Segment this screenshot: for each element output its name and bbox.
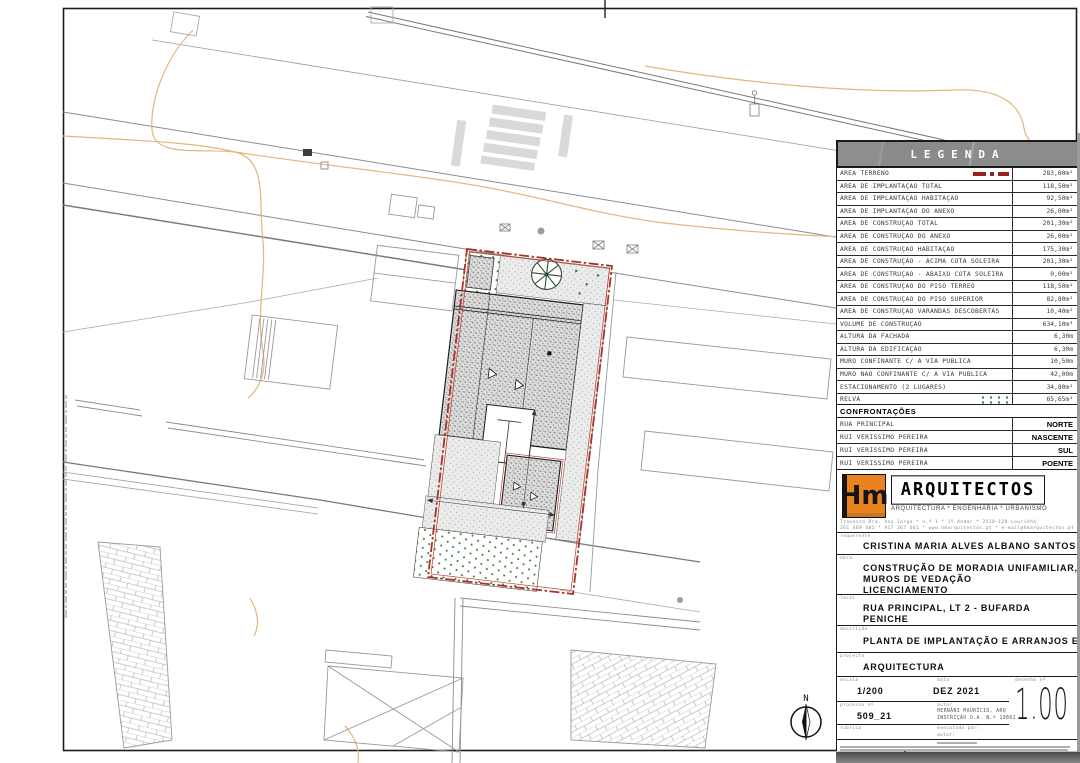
legend-row-value: 201,30m²: [1012, 256, 1077, 268]
field-label-autor2: autor:: [937, 733, 955, 738]
legend-row-value: 634,10m³: [1012, 319, 1077, 331]
legend-row-value: 175,30m²: [1012, 243, 1077, 255]
legend-row: ALTURA DA FACHADA6,30m: [837, 331, 1077, 344]
field-label-data: data: [937, 678, 949, 683]
legend-row: ÁREA DE CONSTRUÇÃO - ACIMA COTA SOLEIRA2…: [837, 256, 1077, 269]
legend-row: ÁREA DE CONSTRUÇÃO - ABAIXO COTA SOLEIRA…: [837, 268, 1077, 281]
legend-row: MURO NÃO CONFINANTE C/ A VIA PÚBLICA42,0…: [837, 369, 1077, 382]
title-block: Hm ARQUITECTOS ARQUITECTURA * ENGENHARIA…: [836, 469, 1078, 751]
confrontacao-row: RUI VERISSIMO PEREIRAPOENTE: [837, 457, 1077, 469]
field-label-descricao: descrição: [840, 627, 868, 632]
autor-line1: HERNÂNI MAURÍCIO, ARQ: [937, 709, 1006, 714]
legend-row-label: ÁREA TERRENO: [840, 170, 889, 177]
field-label-processo: processo nº: [840, 703, 874, 708]
legend-row: ÁREA TERRENO283,00m²: [837, 168, 1077, 181]
confrontacao-direction: NORTE: [1012, 418, 1077, 430]
escala-value: 1/200: [857, 686, 884, 696]
field-line: CONSTRUÇÃO DE MORADIA UNIFAMILIAR, ANEXO…: [863, 563, 1080, 573]
field-line: RUA PRINCIPAL, LT 2 - BUFARDA: [863, 603, 1031, 613]
legend-row-label: VOLUME DE CONSTRUÇÃO: [840, 321, 922, 328]
legend-row-label: ALTURA DA EDIFICAÇÃO: [840, 346, 922, 353]
legend-row-label: MURO CONFINANTE C/ A VIA PÚBLICA: [840, 358, 971, 365]
field-label-rubrica: rubrica: [840, 726, 861, 731]
requerente-value: CRISTINA MARIA ALVES ALBANO SANTOS: [863, 541, 1076, 551]
legend-row: ALTURA DA EDIFICAÇÃO6,30m: [837, 344, 1077, 357]
legend-row: ÁREA DE CONSTRUÇÃO VARANDAS DESCOBERTAS1…: [837, 306, 1077, 319]
legend-row-value: 6,30m: [1012, 344, 1077, 356]
autor-line2: INSCRIÇÃO O.A. N.º 19862: [937, 716, 1016, 721]
north-label: N: [803, 694, 808, 704]
company-address-line1: Travessa Dra. Ana Jorge * n.º 1 * 1º And…: [840, 520, 1072, 525]
legend-row: ÁREA DE CONSTRUÇÃO DO PISO SUPERIOR82,80…: [837, 293, 1077, 306]
legend-row-value: 42,00m: [1012, 369, 1077, 381]
boundary-symbol-icon: [973, 172, 1009, 176]
company-tagline: ARQUITECTURA * ENGENHARIA * URBANISMO: [891, 506, 1047, 512]
company-address-line2: 261 469 481 * 917 367 661 * www.hmarquit…: [840, 526, 1072, 531]
legend-title: LEGENDA: [910, 148, 1005, 161]
legend-row-value: 82,80m²: [1012, 293, 1077, 305]
confrontacao-direction: SUL: [1012, 444, 1077, 456]
legend-row-label: ESTACIONAMENTO (2 LUGARES): [840, 384, 946, 391]
legend-row-value: 6,30m: [1012, 331, 1077, 343]
legend-row-label: ÁREA DE IMPLANTAÇÃO TOTAL: [840, 183, 942, 190]
field-label-obra: obra: [840, 556, 852, 561]
legend-row: MURO CONFINANTE C/ A VIA PÚBLICA10,50m: [837, 356, 1077, 369]
drawing-sheet: N LEGENDA ÁREA TERRENO283,00m²ÁREA DE IM…: [0, 0, 1080, 763]
legend-row-label: ÁREA DE CONSTRUÇÃO HABITAÇÃO: [840, 246, 955, 253]
legend-row-label: ÁREA DE CONSTRUÇÃO DO ANEXO: [840, 233, 950, 240]
legend-row-value: 201,30m²: [1012, 218, 1077, 230]
field-label-local: local: [840, 596, 855, 601]
legend-row-label: MURO NÃO CONFINANTE C/ A VIA PÚBLICA: [840, 371, 987, 378]
field-label-autor: autor: [937, 703, 952, 708]
legend-header: LEGENDA: [836, 140, 1080, 168]
legend-row-label: ÁREA DE CONSTRUÇÃO TOTAL: [840, 220, 938, 227]
confrontacao-row: RUI VERISSIMO PEREIRASUL: [837, 444, 1077, 457]
legend-row-value: 10,40m²: [1012, 306, 1077, 318]
grass-symbol-icon: [979, 395, 1009, 404]
confrontacao-label: RUI VERISSIMO PEREIRA: [837, 434, 1012, 441]
field-label-executado: executado por:: [937, 726, 980, 731]
legend-row-value: 118,50m²: [1012, 281, 1077, 293]
legend-row: VOLUME DE CONSTRUÇÃO634,10m³: [837, 319, 1077, 332]
legend-row: ÁREA DE CONSTRUÇÃO TOTAL201,30m²: [837, 218, 1077, 231]
legend-row-label: RELVA: [840, 396, 860, 403]
legend-row: ÁREA DE IMPLANTAÇÃO DO ANEXO26,00m²: [837, 206, 1077, 219]
legend-row-label: ÁREA DE IMPLANTAÇÃO DO ANEXO: [840, 208, 955, 215]
confrontacoes-header: CONFRONTAÇÕES: [837, 405, 1077, 418]
legend-row-label: ALTURA DA FACHADA: [840, 333, 910, 340]
confrontacao-direction: NASCENTE: [1012, 431, 1077, 443]
legend-row-label: ÁREA DE CONSTRUÇÃO - ACIMA COTA SOLEIRA: [840, 258, 1000, 265]
confrontacao-direction: POENTE: [1012, 457, 1077, 469]
legend-row: ÁREA DE IMPLANTAÇÃO TOTAL118,50m²: [837, 181, 1077, 194]
legend-row: ÁREA DE CONSTRUÇÃO DO PISO TÉRREO118,50m…: [837, 281, 1077, 294]
desenho-number: 1.00: [1015, 680, 1069, 729]
data-value: DEZ 2021: [933, 686, 980, 696]
legend-row-value: 26,00m²: [1012, 231, 1077, 243]
hm-logo: Hm: [842, 474, 886, 518]
page-edge-shadow-bottom: [836, 752, 1080, 763]
legend-row: ESTACIONAMENTO (2 LUGARES)34,80m²: [837, 381, 1077, 394]
processo-value: 509_21: [857, 711, 892, 721]
projecto-value: ARQUITECTURA: [863, 662, 945, 672]
field-label-projecto: projecto: [840, 654, 865, 659]
confrontacao-row: RUI VERISSIMO PEREIRANASCENTE: [837, 431, 1077, 444]
legend-row-value: 92,50m²: [1012, 193, 1077, 205]
legend-row-value: 10,50m: [1012, 356, 1077, 368]
legend-row-value: 283,00m²: [1012, 168, 1077, 180]
descricao-value: PLANTA DE IMPLANTAÇÃO E ARRANJOS EXTERIO…: [863, 636, 1080, 646]
legend-row-label: ÁREA DE CONSTRUÇÃO VARANDAS DESCOBERTAS: [840, 308, 1000, 315]
legend-table: ÁREA TERRENO283,00m²ÁREA DE IMPLANTAÇÃO …: [836, 167, 1078, 419]
legend-row: ÁREA DE CONSTRUÇÃO DO ANEXO26,00m²: [837, 231, 1077, 244]
legend-row: ÁREA DE IMPLANTAÇÃO HABITAÇÃO92,50m²: [837, 193, 1077, 206]
field-label-requerente: requerente: [840, 534, 871, 539]
legend-row-label: ÁREA DE CONSTRUÇÃO DO PISO TÉRREO: [840, 283, 975, 290]
company-logotype: ARQUITECTOS: [891, 475, 1045, 504]
legend-row: ÁREA DE CONSTRUÇÃO HABITAÇÃO175,30m²: [837, 243, 1077, 256]
legend-row-label: ÁREA DE IMPLANTAÇÃO HABITAÇÃO: [840, 195, 959, 202]
legend-row-label: ÁREA DE CONSTRUÇÃO - ABAIXO COTA SOLEIRA: [840, 271, 1004, 278]
legend-row-value: 0,00m²: [1012, 268, 1077, 280]
confrontacao-label: RUA PRINCIPAL: [837, 421, 1012, 428]
legend-row-label: ÁREA DE CONSTRUÇÃO DO PISO SUPERIOR: [840, 296, 983, 303]
confrontacao-label: RUI VERISSIMO PEREIRA: [837, 447, 1012, 454]
confrontacoes-table: CONFRONTAÇÕES RUA PRINCIPALNORTERUI VERI…: [836, 404, 1078, 470]
field-line: PENICHE: [863, 614, 909, 624]
legend-row-value: 26,00m²: [1012, 206, 1077, 218]
confrontacao-label: RUI VERISSIMO PEREIRA: [837, 460, 1012, 467]
confrontacao-row: RUA PRINCIPALNORTE: [837, 418, 1077, 431]
legend-row-value: 34,80m²: [1012, 381, 1077, 393]
field-label-escala: escala: [840, 678, 858, 683]
legend-row-value: 118,50m²: [1012, 181, 1077, 193]
field-line: MUROS DE VEDAÇÃO: [863, 574, 972, 584]
